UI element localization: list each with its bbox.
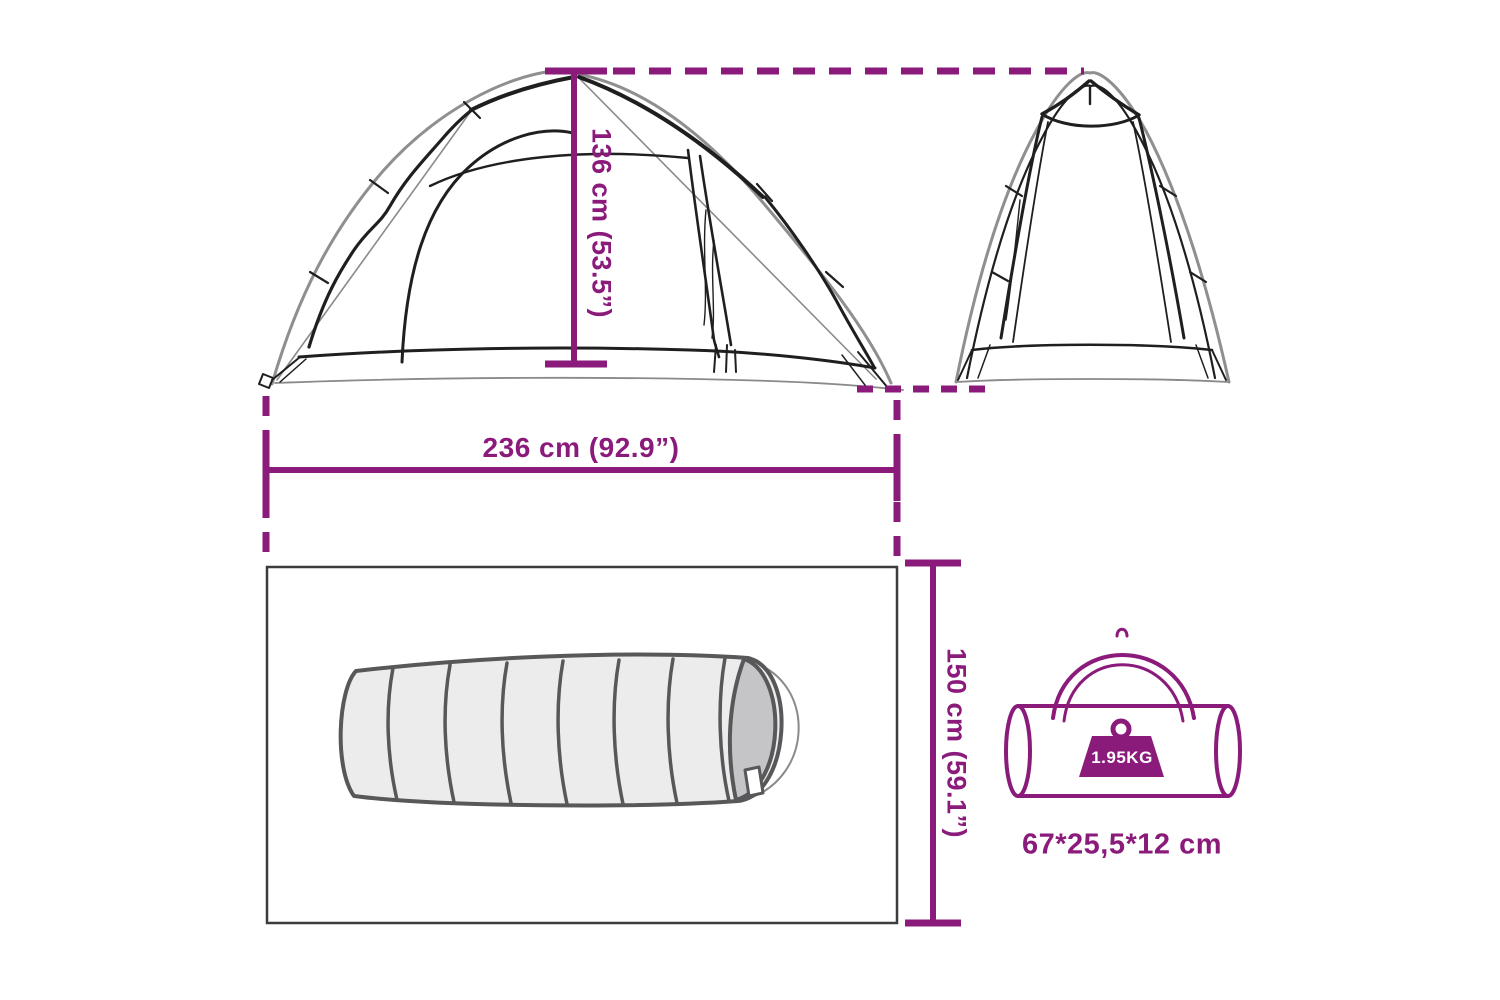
bag-size-label: 67*25,5*12 cm	[1022, 829, 1222, 862]
height-dimension-label: 136 cm (53.5”)	[586, 128, 617, 318]
tent-front-view-illustration	[259, 70, 903, 390]
width-dimension-label: 236 cm (92.9”)	[483, 432, 680, 464]
bag-handle-inner	[1064, 665, 1183, 721]
dimension-diagram: 136 cm (53.5”) 236 cm (92.9”) 150 cm (59…	[0, 0, 1500, 1000]
bag-hang-loop	[1117, 629, 1127, 636]
carry-bag-illustration	[1006, 629, 1240, 796]
diagram-canvas	[0, 0, 1500, 1000]
bag-weight-label: 1.95KG	[1091, 748, 1153, 768]
tent-side-view-illustration	[956, 73, 1229, 382]
sleeping-bag-illustration	[341, 655, 799, 806]
depth-dimension-label: 150 cm (59.1”)	[941, 648, 972, 838]
